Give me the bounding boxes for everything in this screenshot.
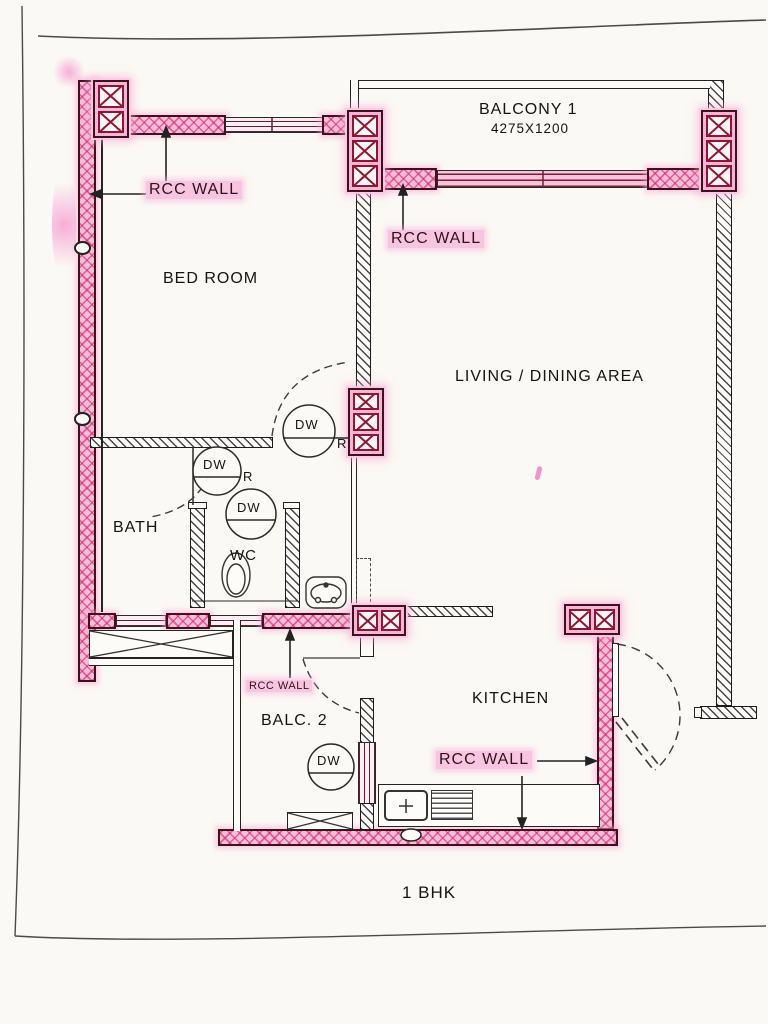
wall-balcony-rcc-right: [647, 168, 703, 190]
entry-door-panel: [612, 643, 619, 717]
column-x-mark: [357, 610, 378, 631]
wc-label: WC: [230, 547, 257, 564]
column-balcony-right: [701, 110, 737, 192]
column-x-mark: [569, 609, 591, 630]
dw-marker-text: DW: [295, 417, 319, 432]
duct-shaft: [356, 558, 371, 607]
column-x-mark: [381, 610, 402, 631]
column-x-mark: [353, 393, 379, 410]
wc-wall-cap: [188, 502, 207, 509]
bath-ledge-base: [89, 658, 233, 666]
column-x-mark: [352, 165, 378, 187]
wall-face-line: [101, 138, 103, 612]
balcony1-dimension: 4275X1200: [491, 121, 569, 136]
floor-plan-page: BALCONY 1 4275X1200 RCC WALL RCC WALL RC…: [0, 0, 768, 1024]
dw-marker-text: DW: [237, 500, 261, 515]
wall-bottom-rcc: [218, 829, 618, 846]
bedroom-window: [225, 117, 323, 133]
rcc-wall-label-1: RCC WALL: [146, 181, 242, 199]
column-mid: [348, 388, 384, 456]
bedroom-label: BED ROOM: [163, 270, 258, 288]
column-x-mark: [352, 140, 378, 162]
entry-door-leaf: [616, 718, 658, 768]
wall-bedroom-top-rcc2: [322, 115, 350, 135]
column-x-mark: [352, 115, 378, 137]
washbasin-fixture: [306, 577, 346, 608]
rcc-wall-label-2: RCC WALL: [388, 230, 484, 248]
column-balc2: [352, 605, 406, 636]
bath-label: BATH: [113, 519, 158, 537]
r-marker-text: R: [337, 436, 347, 451]
column-x-mark: [98, 85, 124, 108]
column-x-mark: [98, 111, 124, 134]
balc2-washing-box: [287, 812, 353, 830]
wall-bath-bottom-rcc2: [166, 613, 210, 629]
kitchen-drainboard: [431, 790, 473, 820]
wall-living-kitchen-divider: [400, 606, 493, 617]
wall-balc2-kitchen2: [360, 803, 374, 830]
rcc-wall-label-4: RCC WALL: [436, 751, 532, 769]
balcony1-label: BALCONY 1: [479, 101, 578, 119]
wall-balcony-rcc-left: [380, 168, 437, 190]
scan-edge-shadow: [380, 998, 768, 1024]
column-x-mark: [353, 434, 379, 451]
living-label: LIVING / DINING AREA: [455, 368, 644, 386]
balcony-railing-left: [350, 80, 359, 113]
column-x-mark: [353, 413, 379, 430]
wall-entry-stub: [700, 706, 757, 719]
entry-door-arc: [617, 644, 680, 770]
bath-window1: [116, 615, 166, 627]
kitchen-sink: [384, 790, 428, 821]
bath-ledge-box: [89, 630, 233, 658]
wall-tie-marker: [74, 412, 91, 426]
wall-wc-right: [285, 505, 300, 608]
rcc-wall-label-3: RCC WALL: [246, 680, 312, 692]
wall-bath-bottom-rcc3: [262, 613, 354, 629]
scan-edge-bottom: [15, 926, 766, 939]
pen-mark: [534, 466, 542, 481]
wall-bedroom-living-divider: [356, 190, 371, 390]
balc2-left-edge: [233, 620, 241, 831]
wall-bath-bottom-rcc1: [88, 613, 116, 629]
highlight-smudge: [52, 165, 76, 285]
wall-bedroom-top-rcc: [122, 115, 226, 135]
column-x-mark: [706, 165, 732, 187]
column-kitchen: [564, 604, 620, 635]
dw-marker-text: DW: [317, 753, 341, 768]
wall-wc-left: [190, 505, 205, 608]
balcony-railing-top: [358, 80, 710, 89]
balc2-label: BALC. 2: [261, 712, 328, 730]
balcony-sliding-window: [437, 170, 649, 188]
balc2-door-frame: [360, 634, 374, 657]
column-balcony-left: [347, 110, 383, 192]
kitchen-label: KITCHEN: [472, 690, 549, 708]
column-top-left: [93, 80, 129, 138]
wall-balcony-corner: [708, 80, 724, 113]
scan-edge-top: [38, 20, 766, 39]
scan-edge-left: [15, 6, 24, 936]
leader-arrows: [91, 127, 596, 828]
plan-title: 1 BHK: [402, 883, 456, 903]
balc2-window: [358, 742, 376, 804]
wall-living-right: [716, 188, 732, 706]
column-x-mark: [594, 609, 616, 630]
wall-bedroom-bottom: [90, 437, 273, 448]
wc-wall-cap: [283, 502, 300, 509]
column-x-mark: [706, 140, 732, 162]
dw-marker-text: DW: [203, 457, 227, 472]
column-x-mark: [706, 115, 732, 137]
wall-balc2-kitchen1: [360, 698, 374, 743]
r-marker-text: R: [243, 469, 253, 484]
door-stop-tick: [694, 707, 702, 718]
wall-tie-marker: [74, 241, 91, 255]
wall-left-rcc: [78, 80, 96, 682]
